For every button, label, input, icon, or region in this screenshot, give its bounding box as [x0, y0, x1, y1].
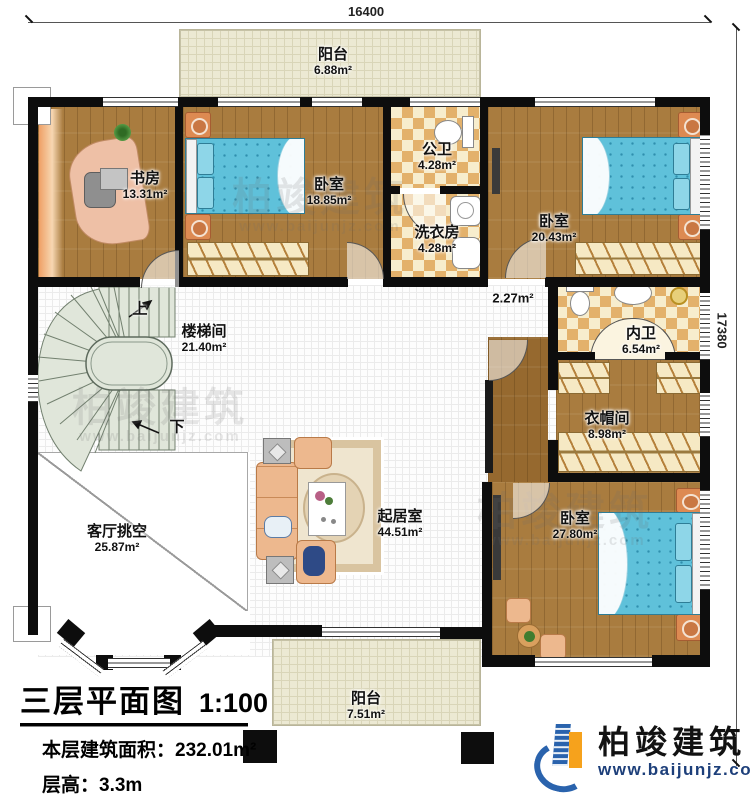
- wall: [545, 277, 710, 287]
- bay-window: [108, 658, 170, 669]
- wall: [482, 482, 492, 667]
- room-label-living-void: 客厅挑空25.87m²: [87, 524, 147, 554]
- room-label-study: 书房13.31m²: [123, 171, 168, 201]
- stairs-up-label: 上: [132, 298, 147, 319]
- wall: [28, 402, 38, 635]
- window: [535, 657, 652, 667]
- laundry-washer-drum: [457, 202, 474, 219]
- wall: [28, 277, 140, 287]
- cloakroom-wardrobe-left: [558, 362, 610, 394]
- wall: [391, 186, 400, 194]
- bedroom2-wardrobe: [575, 242, 705, 275]
- room-label-balcony-top: 阳台6.88m²: [314, 47, 352, 77]
- window: [218, 97, 300, 107]
- living-sofa: [256, 462, 298, 560]
- room-label-bedroom2: 卧室20.43m²: [532, 214, 577, 244]
- living-side-table-bottom: [266, 556, 294, 584]
- living-person-lying: [264, 516, 292, 538]
- room-label-inner-bath: 内卫6.54m²: [622, 326, 660, 356]
- plan-scale: 1:100: [199, 688, 268, 719]
- wall: [556, 352, 595, 360]
- wall: [482, 655, 535, 667]
- bedroom1-wardrobe: [187, 242, 309, 276]
- room-label-public-bath: 公卫4.28m²: [418, 142, 456, 172]
- wall: [28, 97, 38, 375]
- wall: [210, 625, 322, 637]
- wall: [700, 360, 710, 393]
- room-label-corridor: 2.27m²: [492, 292, 533, 307]
- room-label-stairwell: 楼梯间21.40m²: [181, 324, 226, 354]
- study-plant: [114, 124, 131, 141]
- wall: [700, 97, 710, 135]
- bedroom3-tv: [493, 495, 501, 580]
- window: [410, 97, 480, 107]
- balcony-door: [312, 97, 362, 107]
- company-website: www.baijunjz.com: [598, 760, 750, 780]
- wall: [440, 627, 492, 639]
- room-label-bedroom3: 卧室27.80m²: [553, 511, 598, 541]
- floor-height-line: 层高：3.3m: [42, 770, 268, 794]
- window: [28, 375, 38, 402]
- dimension-line-right: [736, 28, 737, 766]
- cloakroom-wardrobe-bottom: [558, 432, 705, 472]
- public-bath-toilet-tank: [462, 116, 474, 148]
- study-window-glow: [39, 109, 63, 277]
- floor-area-line: 本层建筑面积：232.01m²: [42, 735, 268, 762]
- living-coffee-table: [308, 482, 346, 536]
- floor-plan-canvas: 16400 17380: [0, 0, 750, 794]
- cloakroom-wardrobe-right: [656, 362, 704, 394]
- title-underline: [20, 723, 248, 727]
- wall: [652, 655, 710, 667]
- window: [103, 97, 178, 107]
- plan-title: 三层平面图: [20, 676, 185, 721]
- title-block: 三层平面图 1:100 本层建筑面积：232.01m² 层高：3.3m: [20, 676, 268, 794]
- wall: [480, 97, 535, 107]
- wall: [480, 97, 488, 287]
- logo-building-icon: [536, 724, 588, 782]
- living-person-sitting: [303, 546, 325, 576]
- dimension-height-label: 17380: [715, 312, 730, 348]
- wall: [556, 473, 708, 482]
- wall-hall-divider: [485, 380, 493, 473]
- company-logo: 柏竣建筑 www.baijunjz.com: [536, 724, 750, 782]
- wall: [383, 277, 488, 287]
- living-side-table-top: [263, 438, 291, 464]
- stairs-down-label: 下: [169, 416, 184, 437]
- wall: [548, 281, 558, 390]
- inner-bath-shower-drain: [670, 287, 688, 305]
- bedroom2-bed: [582, 137, 702, 215]
- room-label-balcony-bottom: 阳台7.51m²: [347, 691, 385, 721]
- window: [700, 490, 710, 590]
- room-label-cloakroom: 衣帽间8.98m²: [584, 411, 629, 441]
- bedroom1-nightstand-bottom: [185, 214, 211, 240]
- window: [535, 97, 655, 107]
- balcony-door-bottom: [322, 627, 440, 637]
- living-armchair-top: [294, 437, 332, 469]
- window: [700, 293, 710, 360]
- company-name: 柏竣建筑: [598, 726, 750, 760]
- bedroom3-bed: [598, 512, 704, 615]
- inner-bath-toilet: [570, 291, 590, 316]
- bedroom2-tv: [492, 148, 500, 194]
- wall: [178, 97, 218, 107]
- bedroom3-plant-table: [517, 624, 541, 648]
- room-label-bedroom1: 卧室18.85m²: [307, 177, 352, 207]
- room-label-laundry: 洗衣房4.28m²: [414, 225, 459, 255]
- window: [700, 135, 710, 230]
- wall: [700, 437, 710, 490]
- dimension-line-top: [28, 22, 710, 23]
- room-label-living-room: 起居室44.51m²: [377, 509, 422, 539]
- wall: [28, 97, 103, 107]
- pillar-right: [461, 732, 494, 764]
- wall: [440, 186, 480, 194]
- bedroom3-armchair-1: [506, 598, 531, 623]
- bedroom1-nightstand-top: [185, 112, 211, 138]
- window: [700, 393, 710, 437]
- wall: [383, 97, 391, 287]
- bedroom1-bed: [185, 138, 305, 214]
- dimension-width-label: 16400: [348, 4, 384, 19]
- spiral-staircase: [33, 287, 200, 482]
- wall: [300, 97, 312, 107]
- wall: [178, 277, 348, 287]
